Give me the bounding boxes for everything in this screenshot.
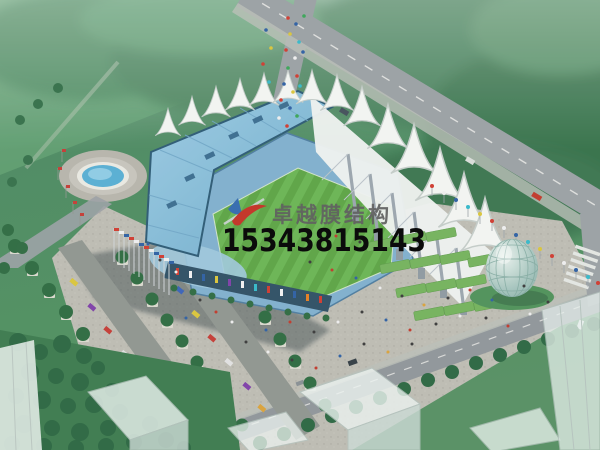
aerial-render-image: 卓越膜结构 15343815143 xyxy=(0,0,600,450)
stadium-scene xyxy=(0,0,600,450)
